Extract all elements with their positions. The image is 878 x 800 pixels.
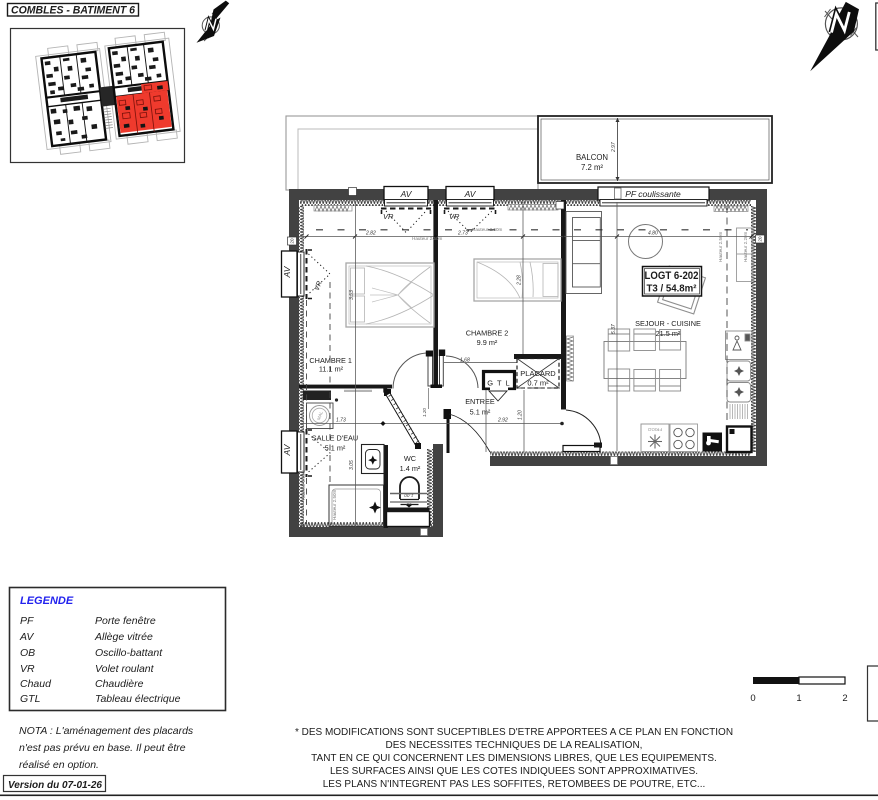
svg-text:Version du 07-01-26: Version du 07-01-26 [8, 779, 102, 791]
svg-text:20: 20 [290, 238, 295, 244]
svg-text:PF: PF [20, 615, 34, 627]
svg-text:1.20: 1.20 [422, 408, 427, 417]
svg-text:1.68: 1.68 [460, 358, 470, 364]
svg-text:2.82: 2.82 [365, 231, 376, 237]
svg-text:* DES MODIFICATIONS SONT SUCEP: * DES MODIFICATIONS SONT SUCEPTIBLES D'E… [295, 727, 733, 738]
svg-text:LOGT 6-202: LOGT 6-202 [645, 270, 699, 282]
svg-text:Hauteur 2.20m: Hauteur 2.20m [743, 231, 748, 262]
svg-text:ENTREE: ENTREE [465, 397, 495, 406]
svg-text:n'est pas prévu en base. Il pe: n'est pas prévu en base. Il peut être [19, 742, 186, 754]
svg-text:AV: AV [282, 443, 292, 456]
svg-text:2.28: 2.28 [517, 275, 523, 286]
svg-text:Tableau électrique: Tableau électrique [95, 693, 181, 705]
svg-text:1: 1 [796, 693, 801, 704]
svg-text:Hauteur 2.50m: Hauteur 2.50m [718, 231, 723, 262]
svg-text:LES SURFACES AINSI QUE LES COT: LES SURFACES AINSI QUE LES COTES INDIQUE… [330, 766, 698, 777]
svg-text:1.00: 1.00 [404, 492, 414, 498]
svg-text:21.5 m²: 21.5 m² [656, 329, 681, 338]
svg-text:NOTA : L'aménagement des placa: NOTA : L'aménagement des placards [19, 725, 194, 737]
svg-text:1.4 m²: 1.4 m² [400, 464, 421, 473]
svg-text:PLACARD: PLACARD [520, 369, 556, 378]
svg-text:0: 0 [750, 693, 755, 704]
svg-text:AV: AV [282, 265, 292, 278]
svg-text:Chaudière: Chaudière [95, 678, 144, 690]
svg-text:OB: OB [20, 647, 35, 659]
svg-text:0.7 m²: 0.7 m² [527, 379, 549, 388]
svg-text:Volet roulant: Volet roulant [95, 663, 155, 675]
svg-text:BALCON: BALCON [576, 153, 608, 162]
svg-text:CHAMBRE 2: CHAMBRE 2 [466, 329, 509, 338]
svg-text:WC: WC [404, 454, 416, 463]
svg-text:2.92: 2.92 [497, 418, 508, 424]
svg-text:Hauteur 2.50m: Hauteur 2.50m [472, 227, 503, 232]
svg-text:Hauteur 2.50m: Hauteur 2.50m [332, 489, 337, 520]
svg-text:Hauteur 2.50m: Hauteur 2.50m [412, 236, 443, 241]
svg-text:LEGENDE: LEGENDE [20, 595, 74, 607]
svg-text:5.1 m²: 5.1 m² [470, 408, 491, 417]
svg-text:Chaud: Chaud [20, 678, 52, 690]
svg-text:5.37: 5.37 [611, 324, 617, 334]
svg-text:G T L: G T L [487, 379, 510, 388]
svg-text:FRIGO: FRIGO [647, 427, 662, 432]
svg-text:3.53: 3.53 [349, 290, 355, 300]
svg-text:1.20: 1.20 [518, 410, 524, 420]
svg-text:VR: VR [20, 663, 35, 675]
svg-text:2.97: 2.97 [611, 142, 617, 153]
svg-text:Porte fenêtre: Porte fenêtre [95, 615, 156, 627]
svg-text:COMBLES - BATIMENT 6: COMBLES - BATIMENT 6 [11, 5, 136, 17]
svg-text:7.2 m²: 7.2 m² [581, 163, 603, 172]
svg-text:DES NECESSITES TECHNIQUES DE L: DES NECESSITES TECHNIQUES DE LA REALISAT… [386, 740, 643, 751]
svg-text:TANT EN CE QUI CONCERNENT LES: TANT EN CE QUI CONCERNENT LES DIMENSIONS… [311, 753, 717, 764]
svg-text:20: 20 [758, 236, 763, 242]
svg-text:AV: AV [400, 189, 413, 199]
svg-text:Allège vitrée: Allège vitrée [94, 631, 153, 643]
svg-text:1.73: 1.73 [336, 418, 346, 424]
svg-text:5.1 m²: 5.1 m² [325, 444, 346, 453]
svg-text:VR: VR [449, 212, 460, 221]
svg-text:AV: AV [464, 189, 477, 199]
svg-text:VR: VR [383, 212, 394, 221]
svg-text:Oscillo-battant: Oscillo-battant [95, 647, 163, 659]
svg-text:T3 / 54.8m²: T3 / 54.8m² [647, 284, 698, 295]
svg-text:GTL: GTL [20, 693, 41, 705]
svg-text:LES PLANS N'INTEGRENT PAS LES: LES PLANS N'INTEGRENT PAS LES SOFFITES, … [323, 779, 706, 790]
svg-text:2.73: 2.73 [457, 231, 468, 237]
svg-text:9.9 m²: 9.9 m² [477, 338, 498, 347]
svg-text:SALLE D'EAU: SALLE D'EAU [312, 434, 358, 443]
svg-text:2: 2 [842, 693, 847, 704]
svg-text:réalisé en option.: réalisé en option. [19, 759, 99, 771]
svg-text:SEJOUR - CUISINE: SEJOUR - CUISINE [635, 319, 701, 328]
svg-text:AV: AV [19, 631, 34, 643]
svg-text:Hauteur 2.20m: Hauteur 2.20m [301, 469, 306, 500]
svg-text:PF coulissante: PF coulissante [625, 189, 681, 199]
svg-text:3.05: 3.05 [349, 460, 355, 470]
svg-text:4.80: 4.80 [648, 231, 658, 237]
svg-text:11.1 m²: 11.1 m² [319, 364, 344, 373]
